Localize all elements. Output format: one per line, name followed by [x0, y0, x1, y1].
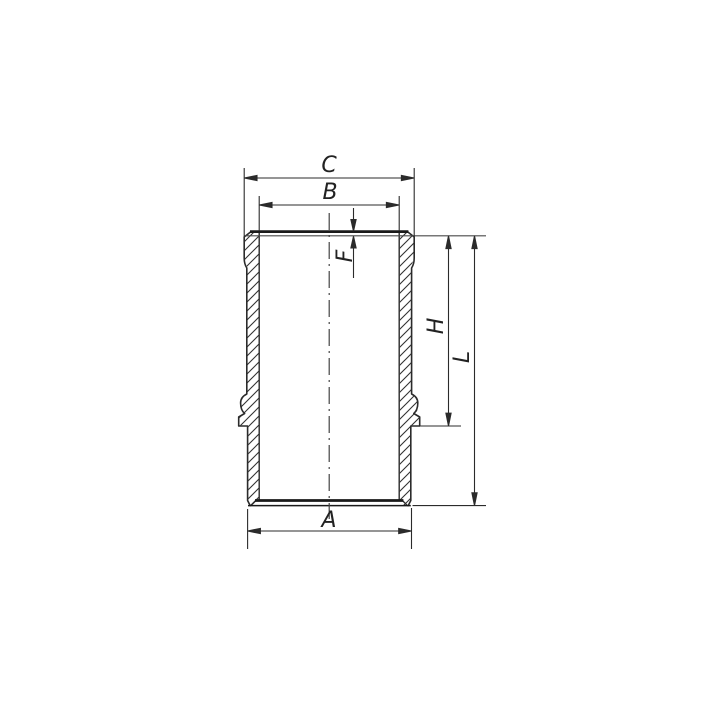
c-arrow-right	[401, 175, 414, 180]
dim-label-l: L	[452, 351, 474, 363]
dimension-l	[413, 236, 487, 506]
dim-label-c: C	[321, 155, 336, 177]
a-arrow-left	[248, 528, 261, 533]
dimension-f	[351, 208, 356, 278]
b-arrow-left	[259, 202, 272, 207]
dim-label-h: H	[426, 318, 448, 335]
b-arrow-right	[386, 202, 399, 207]
f-arrow-down	[351, 220, 356, 232]
h-arrow-down	[446, 413, 451, 426]
dim-label-f: F	[335, 250, 357, 263]
right-wall-hatch	[400, 232, 419, 505]
l-arrow-up	[472, 236, 477, 249]
left-wall-hatch	[239, 232, 258, 505]
cylinder-liner-cross-section	[0, 0, 720, 720]
dim-label-b: B	[322, 182, 337, 204]
a-arrow-right	[399, 528, 412, 533]
h-arrow-up	[446, 236, 451, 249]
c-arrow-left	[244, 175, 257, 180]
l-arrow-down	[472, 493, 477, 506]
technical-drawing-page: C B F H L A	[0, 0, 720, 720]
dim-label-a: A	[321, 510, 336, 532]
